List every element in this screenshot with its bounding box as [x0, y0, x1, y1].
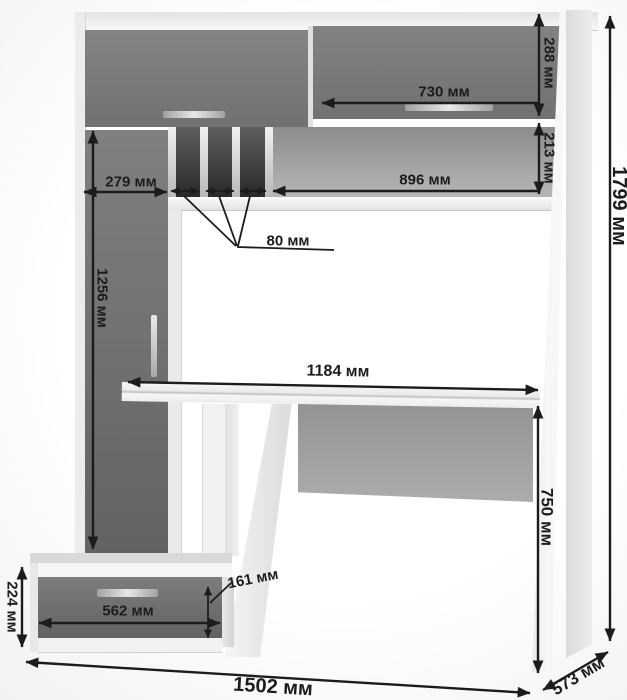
dim-1184-label: 1184 мм: [306, 363, 369, 380]
dim-750-label: 750 мм: [539, 488, 556, 546]
dim-288-label: 288 мм: [542, 37, 557, 88]
desk-modesty-panel: [298, 404, 533, 502]
tall-door-handle: [151, 315, 157, 377]
pedestal-base: [38, 638, 222, 653]
dim-1502-label: 1502 мм: [233, 675, 314, 700]
pigeonhole-divider: [265, 127, 273, 197]
desk-left-support-side: [225, 404, 239, 556]
pedestal-top-board: [30, 563, 232, 578]
drawer-handle: [97, 589, 158, 597]
dim-896-label: 896 мм: [399, 173, 450, 188]
dim-1799-label: 1799 мм: [609, 166, 627, 246]
pedestal-top-surface: [30, 553, 232, 563]
top-left-door-handle: [163, 111, 225, 118]
top-right-door-handle: [405, 103, 493, 111]
dim-279-label: 279 мм: [105, 175, 156, 190]
dim-224-label: 224 мм: [5, 581, 20, 632]
dim-80-label: 80 мм: [266, 234, 309, 249]
dim-730-label: 730 мм: [418, 85, 469, 100]
right-side-panel-face: [566, 10, 592, 658]
pigeonhole-divider: [200, 127, 208, 197]
dim-213-label: 213 мм: [542, 132, 557, 183]
dim-1256-label: 1256 мм: [95, 268, 110, 328]
dim-161-label: 161 мм: [226, 567, 279, 592]
desk-left-support: [202, 404, 226, 563]
furniture-dimension-drawing: 288 мм 730 мм 213 мм 896 мм 279 мм 80 мм…: [0, 0, 627, 700]
pigeonhole-divider: [168, 127, 176, 197]
dim-562-label: 562 мм: [102, 604, 153, 619]
shelf-board: [168, 197, 562, 211]
pigeonhole-block: [168, 127, 273, 197]
pigeonhole-divider: [232, 127, 240, 197]
dim-573-label: 573 мм: [549, 654, 608, 699]
desk-top-board: [122, 382, 540, 408]
pedestal-left-side: [30, 563, 38, 652]
